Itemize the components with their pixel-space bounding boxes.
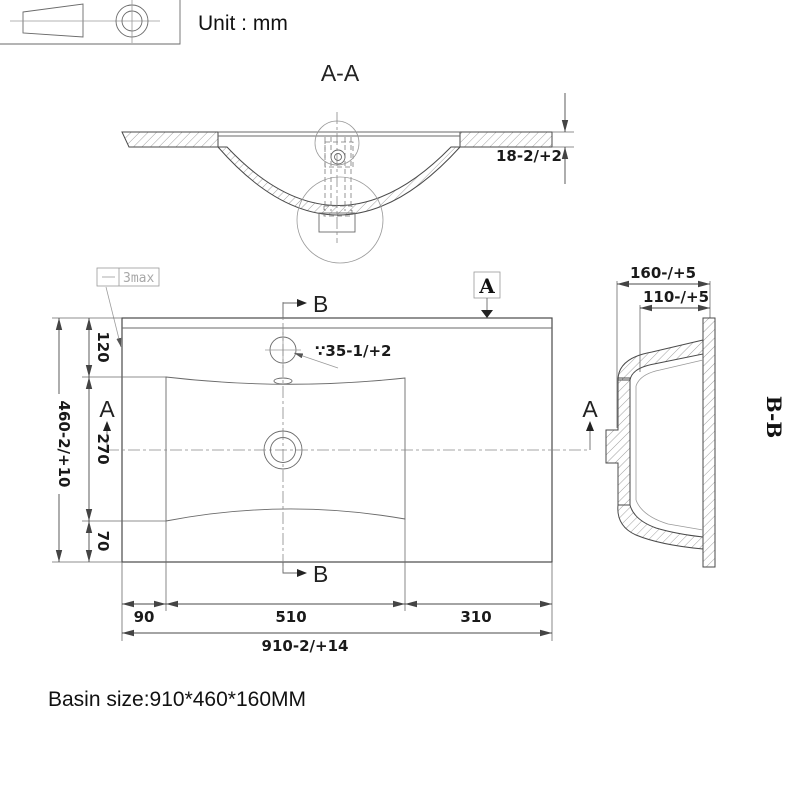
left-dimensions: 120 270 70 460-2/+10 — [49, 318, 166, 562]
thickness-dim-label: 18-2/+2 — [496, 147, 562, 165]
dim-70: 70 — [94, 531, 112, 552]
detail-circle-bottom — [297, 177, 383, 263]
dim-90: 90 — [134, 608, 155, 626]
basin-bowl-outline — [166, 377, 405, 521]
section-marker-b-bottom: B — [283, 561, 328, 587]
unit-label: Unit : mm — [198, 12, 288, 35]
marker-b-top-label: B — [313, 291, 328, 317]
section-marker-a-right: A — [582, 396, 598, 450]
technical-drawing-page: Unit : mm A-A — [0, 0, 800, 800]
section-bb-title: B-B — [762, 396, 786, 438]
bottom-dimensions: 90 510 310 910-2/+14 — [122, 519, 552, 655]
flatness-label: 3max — [123, 271, 154, 286]
section-marker-a-boxed: A — [474, 272, 500, 318]
bowl-section — [218, 147, 460, 215]
dim-310: 310 — [460, 608, 491, 626]
section-aa-title: A-A — [321, 60, 360, 86]
faucet-dim-label: ∵35-1/+2 — [315, 342, 391, 360]
marker-a-boxed-label: A — [478, 274, 495, 298]
basin-drawing-canvas: Unit : mm A-A — [0, 0, 800, 800]
projection-symbol-icon — [0, 0, 180, 44]
section-bb-view: 160-/+5 110-/+5 B-B — [606, 264, 786, 567]
dim-120: 120 — [94, 331, 112, 362]
bb-profile — [606, 318, 715, 567]
plan-view: ∵35-1/+2 B B A — [49, 272, 598, 655]
marker-a-right-label: A — [582, 396, 598, 422]
marker-a-left-label: A — [99, 396, 115, 422]
dim-270: 270 — [94, 433, 112, 464]
basin-size-label: Basin size:910*460*160MM — [48, 688, 306, 711]
section-marker-b-top: B — [283, 291, 328, 318]
marker-b-bottom-label: B — [313, 561, 328, 587]
dim-510: 510 — [275, 608, 306, 626]
faucet-hole: ∵35-1/+2 — [265, 332, 391, 368]
section-aa-view: 18-2/+2 — [122, 93, 574, 263]
drain-pipe-hidden — [324, 137, 353, 216]
slab-right — [460, 132, 552, 147]
slab-left — [122, 132, 218, 147]
dim-110: 110-/+5 — [643, 288, 709, 306]
drain-screw — [331, 150, 345, 164]
dim-160: 160-/+5 — [630, 264, 696, 282]
dim-460-overall: 460-2/+10 — [55, 401, 73, 488]
dim-910-overall: 910-2/+14 — [262, 637, 349, 655]
